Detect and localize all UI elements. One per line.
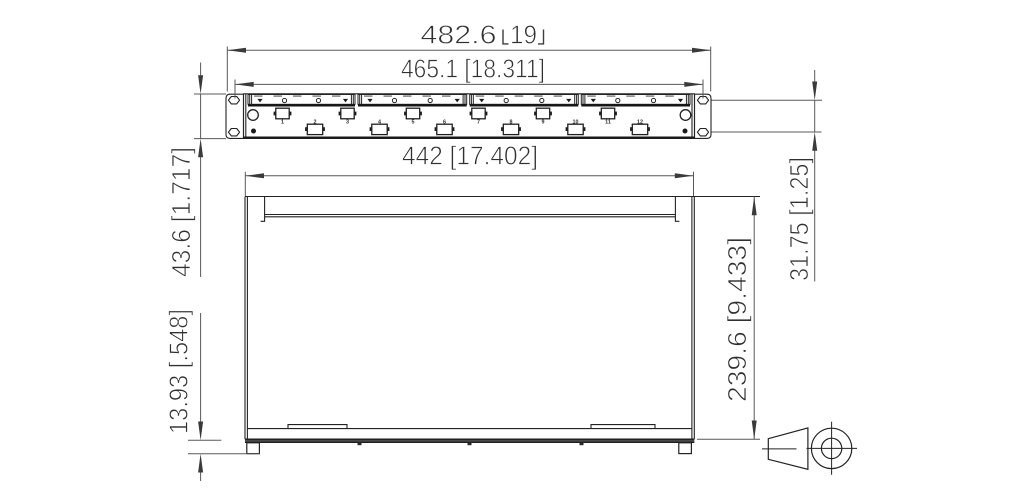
svg-text:11: 11 xyxy=(605,120,611,126)
svg-text:31.75 [1.25]: 31.75 [1.25] xyxy=(784,157,814,281)
svg-text:239.6 [9.433]: 239.6 [9.433] xyxy=(722,237,752,402)
svg-text:12: 12 xyxy=(637,120,643,126)
svg-text:3: 3 xyxy=(346,120,349,126)
svg-text:13.93 [.548]: 13.93 [.548] xyxy=(164,309,194,434)
svg-text:43.6 [1.717]: 43.6 [1.717] xyxy=(166,147,196,277)
svg-text:7: 7 xyxy=(477,120,480,126)
svg-text:2: 2 xyxy=(314,120,317,126)
svg-text:465.1 [18.311]: 465.1 [18.311] xyxy=(401,53,545,83)
svg-text:482.6: 482.6 xyxy=(421,20,497,50)
svg-text:10: 10 xyxy=(573,120,579,126)
svg-text:1: 1 xyxy=(281,120,284,126)
svg-text:442 [17.402]: 442 [17.402] xyxy=(402,140,538,170)
svg-text:5: 5 xyxy=(412,120,415,126)
svg-text:19: 19 xyxy=(510,20,537,50)
svg-text:4: 4 xyxy=(378,120,381,126)
svg-text:8: 8 xyxy=(510,120,513,126)
svg-text:9: 9 xyxy=(542,120,545,126)
svg-text:6: 6 xyxy=(443,120,446,126)
